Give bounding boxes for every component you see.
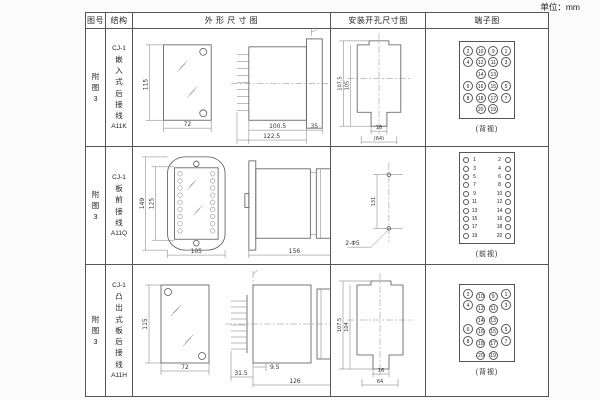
dim-side-body: 100.5 bbox=[269, 123, 286, 130]
terminal-view-caption: (背视) bbox=[476, 124, 499, 134]
terminal-number: 17 bbox=[471, 224, 478, 230]
terminal-number: 7 bbox=[471, 182, 478, 188]
dim-slot-width: 16 bbox=[375, 125, 381, 131]
terminal-number: 10 bbox=[496, 191, 503, 197]
dim-bottom-width: (64) bbox=[373, 136, 383, 142]
terminal-circle: 18 bbox=[476, 93, 486, 103]
mount-name-label: 嵌入式后接线 bbox=[115, 54, 123, 122]
terminal-number: 13 bbox=[471, 208, 478, 214]
terminal-strip-left bbox=[177, 171, 182, 233]
terminal-circle bbox=[463, 174, 469, 180]
terminal-circle: 20 bbox=[476, 104, 486, 114]
dim-front-width: 72 bbox=[181, 364, 189, 371]
terminal-circle: 17 bbox=[488, 93, 498, 103]
terminal-circle: 4 bbox=[463, 57, 473, 67]
model-label: CJ-1 bbox=[112, 45, 126, 52]
terminal-circle bbox=[505, 174, 511, 180]
terminal-number: 19 bbox=[471, 233, 478, 239]
terminal-number: 5 bbox=[471, 174, 478, 180]
terminal-number: 18 bbox=[496, 224, 503, 230]
spec-table: 图号 结构 外 形 尺 寸 图 安装开孔尺寸图 端子图 附图3 CJ-1 嵌入式… bbox=[85, 12, 549, 397]
terminal-number: 12 bbox=[496, 199, 503, 205]
terminal-number: 8 bbox=[496, 182, 503, 188]
terminal-circle: 9 bbox=[489, 292, 498, 301]
terminal-circle: 2 bbox=[463, 289, 473, 299]
terminal-circle: 7 bbox=[501, 336, 511, 346]
dim-front-outer-height: 149 bbox=[138, 198, 145, 210]
dim-slot-width: 16 bbox=[377, 368, 383, 374]
hatch-marks bbox=[171, 305, 193, 346]
terminal-circle: 14 bbox=[476, 69, 486, 79]
terminal-circle: 10 bbox=[476, 46, 486, 56]
header-structure: 结构 bbox=[106, 13, 133, 29]
terminal-circle: 8 bbox=[463, 336, 473, 346]
terminal-circle bbox=[463, 157, 469, 163]
model-code-label: A11K bbox=[111, 123, 126, 130]
terminal-number: 2 bbox=[496, 157, 503, 163]
mount-name-label: 凸出式板后接线 bbox=[115, 291, 123, 370]
dim-front-width: 105 bbox=[190, 248, 202, 255]
terminal-circle bbox=[463, 191, 469, 197]
terminal-number: 11 bbox=[471, 199, 478, 205]
terminal-circle: 6 bbox=[463, 324, 473, 334]
dim-front-height: 115 bbox=[142, 318, 149, 330]
model-label: CJ-1 bbox=[112, 174, 126, 181]
terminal-cell-row1: 2109141211314136161558181772019 (背视) bbox=[426, 29, 548, 147]
terminal-circle: 8 bbox=[463, 93, 473, 103]
terminal-circle: 13 bbox=[489, 316, 498, 325]
terminal-circle: 16 bbox=[476, 327, 485, 336]
outline-drawing-row3: 115 72 bbox=[133, 265, 331, 396]
dim-cutout-outer-height: 107.5 bbox=[337, 318, 343, 332]
install-svg-a11k: 107.5 105 16 (64) bbox=[331, 29, 426, 146]
terminal-view-caption: (背视) bbox=[476, 367, 499, 377]
header-terminal-diagram: 端子图 bbox=[426, 13, 548, 29]
model-code-label: A11Q bbox=[111, 230, 127, 237]
terminal-circle: 15 bbox=[489, 327, 498, 336]
model-label: CJ-1 bbox=[112, 282, 126, 289]
dim-bottom-width: 64 bbox=[376, 379, 382, 385]
dim-side-total: 122.5 bbox=[263, 133, 280, 140]
terminal-circle: 13 bbox=[488, 69, 498, 79]
structure-row3: CJ-1 凸出式板后接线 A11H bbox=[106, 265, 133, 396]
terminal-number: 3 bbox=[471, 166, 478, 172]
terminal-number: 14 bbox=[496, 208, 503, 214]
dim-cutout-inner-height: 104 bbox=[344, 322, 350, 332]
dim-front-height: 115 bbox=[142, 79, 149, 91]
fig-no-row2: 附图3 bbox=[86, 147, 106, 265]
dim-side-flange: 35 bbox=[310, 123, 318, 130]
install-drawing-row1: 107.5 105 16 (64) bbox=[331, 29, 426, 147]
dim-side-length: 156 bbox=[288, 248, 300, 255]
terminal-circle bbox=[505, 233, 511, 239]
terminal-fins bbox=[231, 301, 247, 349]
terminal-circle bbox=[505, 166, 511, 172]
install-svg-a11q: 131 2-Φ5 bbox=[331, 147, 426, 264]
outline-svg-a11q: 149 125 105 115 156 bbox=[133, 147, 331, 264]
header-install-dims: 安装开孔尺寸图 bbox=[331, 13, 426, 29]
terminal-circle bbox=[463, 224, 469, 230]
outline-svg-a11h: 115 72 bbox=[133, 265, 331, 396]
terminal-circle: 19 bbox=[488, 104, 498, 114]
terminal-circle: 1 bbox=[501, 46, 511, 56]
terminal-number: 20 bbox=[496, 233, 503, 239]
install-drawing-row3: 107.5 104 16 64 bbox=[331, 265, 426, 396]
dim-side-b: 9.5 bbox=[270, 364, 280, 371]
terminal-number: 9 bbox=[471, 191, 478, 197]
terminal-circle bbox=[505, 191, 511, 197]
terminal-cell-row3: 2109141211314136161558181772019 (背视) bbox=[426, 265, 548, 396]
terminal-circle: 6 bbox=[463, 81, 473, 91]
dim-side-length: 126 bbox=[289, 378, 301, 385]
outline-drawing-row1: 115 72 100 bbox=[133, 29, 331, 147]
terminal-circle bbox=[505, 199, 511, 205]
structure-row1: CJ-1 嵌入式后接线 A11K bbox=[106, 29, 133, 147]
terminal-circle: 5 bbox=[501, 81, 511, 91]
dim-front-inner-height: 125 bbox=[148, 198, 155, 210]
header-outline-dims: 外 形 尺 寸 图 bbox=[133, 13, 331, 29]
terminal-circle: 20 bbox=[476, 351, 485, 360]
terminal-circle: 19 bbox=[489, 351, 498, 360]
mount-name-label: 板前接线 bbox=[115, 183, 123, 228]
terminal-circle: 15 bbox=[488, 81, 498, 91]
header-fig-no: 图号 bbox=[86, 13, 106, 29]
fig-no-row3: 附图3 bbox=[86, 265, 106, 396]
terminal-number: 6 bbox=[496, 174, 503, 180]
dim-cutout-inner-height: 105 bbox=[344, 81, 350, 90]
terminal-circle bbox=[505, 224, 511, 230]
terminal-strip-right bbox=[210, 171, 215, 233]
terminal-circle bbox=[505, 157, 511, 163]
terminal-circle bbox=[463, 208, 469, 214]
terminal-number: 4 bbox=[496, 166, 503, 172]
fig-no-row1: 附图3 bbox=[86, 29, 106, 147]
dim-side-a: 31.5 bbox=[234, 370, 248, 377]
terminal-circle: 5 bbox=[501, 324, 511, 334]
terminal-circle: 14 bbox=[476, 316, 485, 325]
terminal-circle: 7 bbox=[501, 93, 511, 103]
terminal-grid-front-a11q: 1234567891011121314151617181920 bbox=[459, 152, 515, 244]
terminal-view-caption: (前视) bbox=[476, 249, 499, 259]
fig-no-label: 附图3 bbox=[91, 71, 99, 105]
terminal-circle bbox=[505, 182, 511, 188]
terminal-circle bbox=[463, 166, 469, 172]
terminal-circle: 4 bbox=[463, 300, 473, 310]
terminal-number: 15 bbox=[471, 216, 478, 222]
terminal-circle: 16 bbox=[476, 81, 486, 91]
dim-cutout-outer-height: 107.5 bbox=[337, 76, 343, 90]
terminal-circle: 1 bbox=[501, 289, 511, 299]
terminal-circle: 2 bbox=[463, 46, 473, 56]
dim-hole-spacing: 131 bbox=[371, 197, 377, 206]
terminal-circle bbox=[463, 216, 469, 222]
terminal-circle bbox=[505, 216, 511, 222]
terminal-circle bbox=[505, 208, 511, 214]
hatch-marks bbox=[177, 61, 197, 98]
terminal-number: 1 bbox=[471, 157, 478, 163]
structure-row2: CJ-1 板前接线 A11Q bbox=[106, 147, 133, 265]
model-code-label: A11H bbox=[111, 372, 127, 379]
terminal-circle: 17 bbox=[489, 339, 498, 348]
terminal-cell-row2: 1234567891011121314151617181920 (前视) bbox=[426, 147, 548, 265]
terminal-circle: 12 bbox=[476, 57, 486, 67]
terminal-fins bbox=[236, 55, 248, 111]
dim-front-width: 72 bbox=[183, 121, 191, 128]
outline-svg-a11k: 115 72 100 bbox=[133, 29, 331, 146]
terminal-circle: 11 bbox=[488, 57, 498, 67]
fig-no-label: 附图3 bbox=[91, 189, 99, 223]
terminal-grid-rear-a11k: 2109141211314136161558181772019 bbox=[459, 41, 515, 119]
install-svg-a11h: 107.5 104 16 64 bbox=[331, 265, 426, 396]
terminal-circle: 3 bbox=[501, 57, 511, 67]
terminal-circle bbox=[463, 233, 469, 239]
hatch-marks bbox=[187, 180, 202, 216]
hole-callout-label: 2-Φ5 bbox=[345, 240, 360, 247]
terminal-circle bbox=[463, 199, 469, 205]
fig-no-label: 附图3 bbox=[91, 314, 99, 348]
terminal-circle: 11 bbox=[489, 304, 498, 313]
terminal-circle: 18 bbox=[476, 339, 485, 348]
terminal-circle: 3 bbox=[501, 300, 511, 310]
install-drawing-row2: 131 2-Φ5 bbox=[331, 147, 426, 265]
terminal-circle: 10 bbox=[476, 292, 485, 301]
outline-drawing-row2: 149 125 105 115 156 bbox=[133, 147, 331, 265]
terminal-grid-rear-a11h: 2109141211314136161558181772019 bbox=[459, 284, 515, 362]
terminal-number: 16 bbox=[496, 216, 503, 222]
terminal-circle: 9 bbox=[488, 46, 498, 56]
terminal-circle: 12 bbox=[476, 304, 485, 313]
terminal-circle bbox=[463, 182, 469, 188]
